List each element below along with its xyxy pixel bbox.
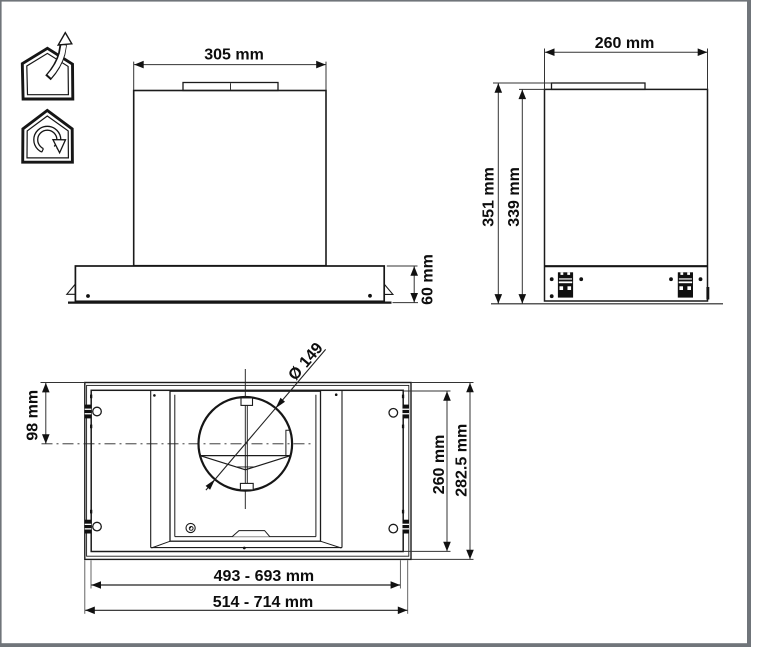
svg-text:260 mm: 260 mm — [431, 435, 448, 495]
svg-text:514 - 714 mm: 514 - 714 mm — [213, 594, 314, 611]
svg-text:260 mm: 260 mm — [595, 35, 655, 52]
svg-text:305 mm: 305 mm — [204, 46, 264, 63]
svg-text:493 - 693 mm: 493 - 693 mm — [214, 568, 315, 585]
svg-text:60 mm: 60 mm — [420, 254, 437, 305]
svg-text:351 mm: 351 mm — [481, 167, 498, 227]
svg-text:98 mm: 98 mm — [25, 390, 42, 441]
svg-text:339 mm: 339 mm — [506, 167, 523, 227]
svg-text:282.5 mm: 282.5 mm — [454, 424, 471, 497]
